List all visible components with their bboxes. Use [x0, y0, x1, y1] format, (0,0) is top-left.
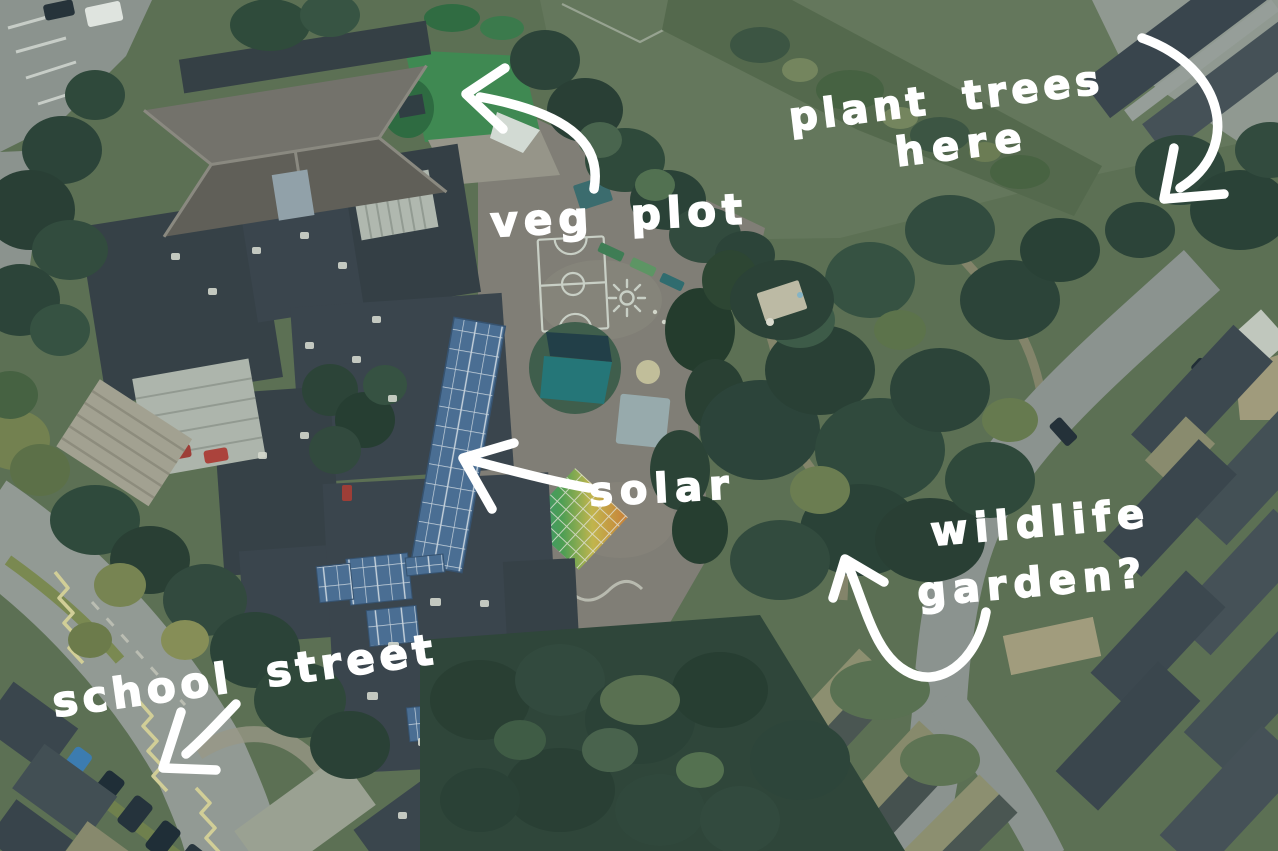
- solar-label: solar: [588, 462, 737, 516]
- aerial-annotated-map: plant trees here veg plot solar wildlife…: [0, 0, 1278, 851]
- aerial-map-svg: plant trees here veg plot solar wildlife…: [0, 0, 1278, 851]
- photo-tint: [0, 0, 1278, 851]
